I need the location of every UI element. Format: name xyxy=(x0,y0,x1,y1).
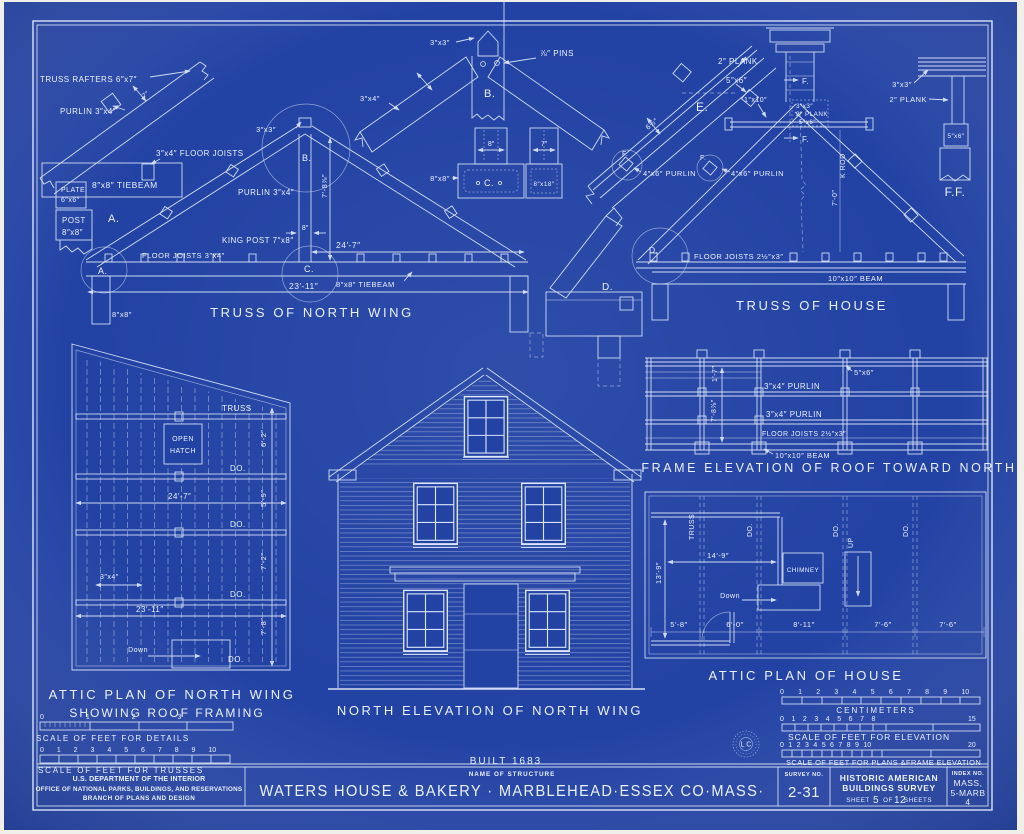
label-plan-do-3: DO. xyxy=(903,523,910,537)
dim-bay-3: 7′-2″ xyxy=(259,553,268,570)
dim-king-post-width: 8″ xyxy=(302,225,309,232)
label-f-lower: F. xyxy=(802,135,809,144)
label-purlin-nw: PURLIN 3″x4″ xyxy=(238,188,294,197)
dim-rafter-b: 3″x4″ xyxy=(360,94,380,103)
dim-ridge-size: 3″x3″ xyxy=(796,103,813,110)
label-detail-ff: F.F. xyxy=(945,185,966,199)
label-plan-do-1: DO. xyxy=(747,523,754,537)
label-detail-a: A. xyxy=(108,213,119,225)
scale-details-numbers: 0 1 2 3 xyxy=(40,714,182,721)
sheet-word: SHEET xyxy=(846,797,870,804)
label-plan-truss: TRUSS xyxy=(689,514,696,540)
title-attic-plan-house: ATTIC PLAN OF HOUSE xyxy=(708,668,903,683)
scale-plans-label: SCALE OF FEET FOR PLANS &FRAME ELEVATION xyxy=(786,758,981,767)
label-beam-house: 10″x10″ BEAM xyxy=(828,274,883,283)
scale-details-label: SCALE OF FEET FOR DETAILS xyxy=(36,734,190,743)
dim-plan-width: 14′-9″ xyxy=(707,551,729,560)
dim-ridge-purlin: 5″x6″ xyxy=(799,119,816,126)
dim-c-tiebeam: 8″x8″ xyxy=(430,174,450,183)
agency-line-2: OFFICE OF NATIONAL PARKS, BUILDINGS, AND… xyxy=(36,786,243,793)
dim-bay-d: 7′-6″ xyxy=(874,620,891,629)
habs-line-1: HISTORIC AMERICAN xyxy=(840,773,939,783)
dim-ff-size: 3″x3″ xyxy=(892,80,912,89)
label-floor-joists-a: 3″x4″ FLOOR JOISTS xyxy=(156,149,244,158)
label-purlin-f2: 4″x6″ PURLIN xyxy=(731,169,784,178)
label-chimney: CHIMNEY xyxy=(787,567,820,574)
dim-purlin-e: 5″x6″ xyxy=(726,76,747,85)
label-open-hatch-1: OPEN xyxy=(172,436,194,443)
dim-truss-height: 7′-8⅞″ xyxy=(320,174,329,198)
dim-span-upper: 24′-7″ xyxy=(336,240,361,250)
index-line-1: MASS, xyxy=(954,778,983,788)
survey-no-value: 2-31 xyxy=(788,784,820,801)
scale-elev-label: SCALE OF FEET FOR ELEVATION xyxy=(788,732,950,742)
scale-elev-end: 15 xyxy=(968,716,976,723)
dim-frame-1: 1′-7″ xyxy=(712,366,719,382)
label-built: BUILT 1683 xyxy=(470,756,542,767)
label-purlin-a: PURLIN 3″x4″ xyxy=(60,107,116,116)
label-plate-size: 6″x6″ xyxy=(61,197,80,204)
blueprint-sheet: TRUSS RAFTERS 6″x7″ PURLIN 3″x4″ 7″ 3″x4… xyxy=(0,0,1024,834)
index-no-label: INDEX NO. xyxy=(952,771,985,777)
dim-ridge-plank: 2″ PLANK xyxy=(796,111,828,118)
label-plate: PLATE xyxy=(61,187,85,194)
label-tiebeam-nw: 8″x8″ TIEBEAM xyxy=(336,280,395,289)
structure-name: WATERS HOUSE & BAKERY · MARBLEHEAD·ESSEX… xyxy=(260,783,765,800)
scale-cm-numbers: 0 1 2 3 4 5 6 7 8 9 10 xyxy=(780,689,969,696)
label-do-1: DO. xyxy=(230,464,246,473)
label-detail-c: C. xyxy=(484,178,494,188)
label-do-4: DO. xyxy=(228,655,244,664)
label-detail-e: E. xyxy=(696,100,708,114)
scale-trusses-numbers: 0 1 2 3 4 5 6 7 8 9 10 xyxy=(40,747,216,754)
label-post-size-nw: 8″x8″ xyxy=(112,310,132,319)
scale-elev-numbers: 0 1 2 3 4 5 6 7 8 xyxy=(780,716,876,723)
title-frame-elevation: FRAME ELEVATION OF ROOF TOWARD NORTH xyxy=(641,461,1016,475)
dim-c-post: 8″x18″ xyxy=(533,181,554,188)
title-truss-of-house: TRUSS OF HOUSE xyxy=(736,298,888,313)
dim-bay-4: 7′-8″ xyxy=(259,618,268,635)
dim-plan-depth: 13′-9″ xyxy=(654,562,663,584)
dim-bay-1: 6′-2″ xyxy=(259,430,268,447)
label-plan-do-2: DO. xyxy=(833,523,840,537)
of-word: OF xyxy=(883,797,893,804)
label-frame-beam: 10″x10″ BEAM xyxy=(775,451,830,460)
dim-bay-c: 8′-11″ xyxy=(793,620,815,629)
survey-no-label: SURVEY NO. xyxy=(785,772,824,778)
label-f-upper: F. xyxy=(802,77,809,86)
stamp-text: L C xyxy=(741,742,752,749)
dim-joist-plan: 3″x4″ xyxy=(100,574,119,581)
label-king-post: KING POST 7″x8″ xyxy=(222,236,294,245)
label-truss-plan: TRUSS xyxy=(222,404,252,413)
dim-frame-post: 5″x6″ xyxy=(854,368,874,377)
label-do-3: DO. xyxy=(230,590,246,599)
scale-plans-end: 20 xyxy=(968,742,976,749)
title-truss-north-wing: TRUSS OF NORTH WING xyxy=(210,305,414,320)
label-post: POST xyxy=(62,216,86,225)
name-of-structure-label: NAME OF STRUCTURE xyxy=(469,771,556,778)
label-frame-purlin-2: 3″x4″ PURLIN xyxy=(766,410,822,419)
label-tiebeam-a: 8″x8″ TIEBEAM xyxy=(92,180,158,190)
label-detail-b-ref: B. xyxy=(302,153,312,163)
dim-bay-e: 7′-6″ xyxy=(939,620,956,629)
label-detail-b: B. xyxy=(484,88,495,100)
label-pins: ⅞″ PINS xyxy=(540,49,574,58)
sheet-number: 5 xyxy=(873,795,879,806)
scale-plans-numbers: 0 1 2 3 4 5 6 7 8 9 10 xyxy=(780,742,871,749)
dim-frame-2: 7′-8⅞″ xyxy=(711,399,718,422)
index-line-3: 4 xyxy=(965,797,970,807)
title-attic-plan-nw-1: ATTIC PLAN OF NORTH WING xyxy=(49,687,296,702)
dim-plan-lower: 23′-11″ xyxy=(136,605,164,614)
dim-collar: 1″x10″ xyxy=(744,97,767,104)
dim-c-8: 8″ xyxy=(488,141,495,148)
dim-bay-b: 6′-0″ xyxy=(726,620,743,629)
label-post-size: 8″x8″ xyxy=(62,228,83,237)
label-floor-joists-nw: FLOOR JOISTS 3″x4″ xyxy=(142,251,225,260)
label-detail-c-ref: C. xyxy=(304,264,314,274)
label-do-2: DO. xyxy=(230,520,246,529)
label-detail-d: D. xyxy=(602,282,613,293)
dim-ff-purlin: 5″x6″ xyxy=(947,133,964,140)
habs-line-2: BUILDINGS SURVEY xyxy=(842,783,936,793)
agency-line-1: U.S. DEPARTMENT OF THE INTERIOR xyxy=(73,776,206,783)
sheets-word: SHEETS xyxy=(904,797,932,804)
label-f1: F. xyxy=(622,151,628,158)
label-up: UP xyxy=(848,537,855,548)
scale-trusses-label: SCALE OF FEET FOR TRUSSES xyxy=(38,766,204,775)
scale-cm-label: CENTIMETERS xyxy=(836,706,915,715)
label-open-hatch-2: HATCH xyxy=(170,448,196,455)
label-truss-rafters: TRUSS RAFTERS 6″x7″ xyxy=(40,75,137,84)
label-f2: F. xyxy=(700,155,706,162)
title-north-elevation: NORTH ELEVATION OF NORTH WING xyxy=(337,703,643,718)
label-king-rod: K ROD xyxy=(840,153,847,178)
label-down-nw: Down xyxy=(128,647,148,654)
dim-span-lower: 23′-11″ xyxy=(289,281,318,291)
agency-line-3: BRANCH OF PLANS AND DESIGN xyxy=(83,795,195,802)
label-down-house: Down xyxy=(720,593,740,600)
label-plank-e: 2″ PLANK xyxy=(718,57,758,66)
dim-plan-upper: 24′-7″ xyxy=(168,492,191,501)
dim-peak-size: 3″x3″ xyxy=(256,125,276,134)
dim-bay-a: 5′-8″ xyxy=(670,620,687,629)
dim-bay-2: 5′-9″ xyxy=(259,490,268,507)
dim-c-7: 7″ xyxy=(541,141,548,148)
label-purlin-f1: 4″x6″ PURLIN xyxy=(643,169,696,178)
label-floor-joists-house: FLOOR JOISTS 2½″x3″ xyxy=(694,252,783,261)
label-detail-d-ref: D. xyxy=(649,245,659,255)
label-frame-joists: FLOOR JOISTS 2½″x3″ xyxy=(762,430,846,438)
label-detail-a-ref: A. xyxy=(98,266,108,276)
label-frame-purlin-1: 3″x4″ PURLIN xyxy=(764,382,820,391)
dim-peak-b: 3″x3″ xyxy=(430,38,450,47)
dim-king-rod: 7′-0″ xyxy=(832,190,839,206)
label-ff-plank: 2″ PLANK xyxy=(889,95,927,104)
